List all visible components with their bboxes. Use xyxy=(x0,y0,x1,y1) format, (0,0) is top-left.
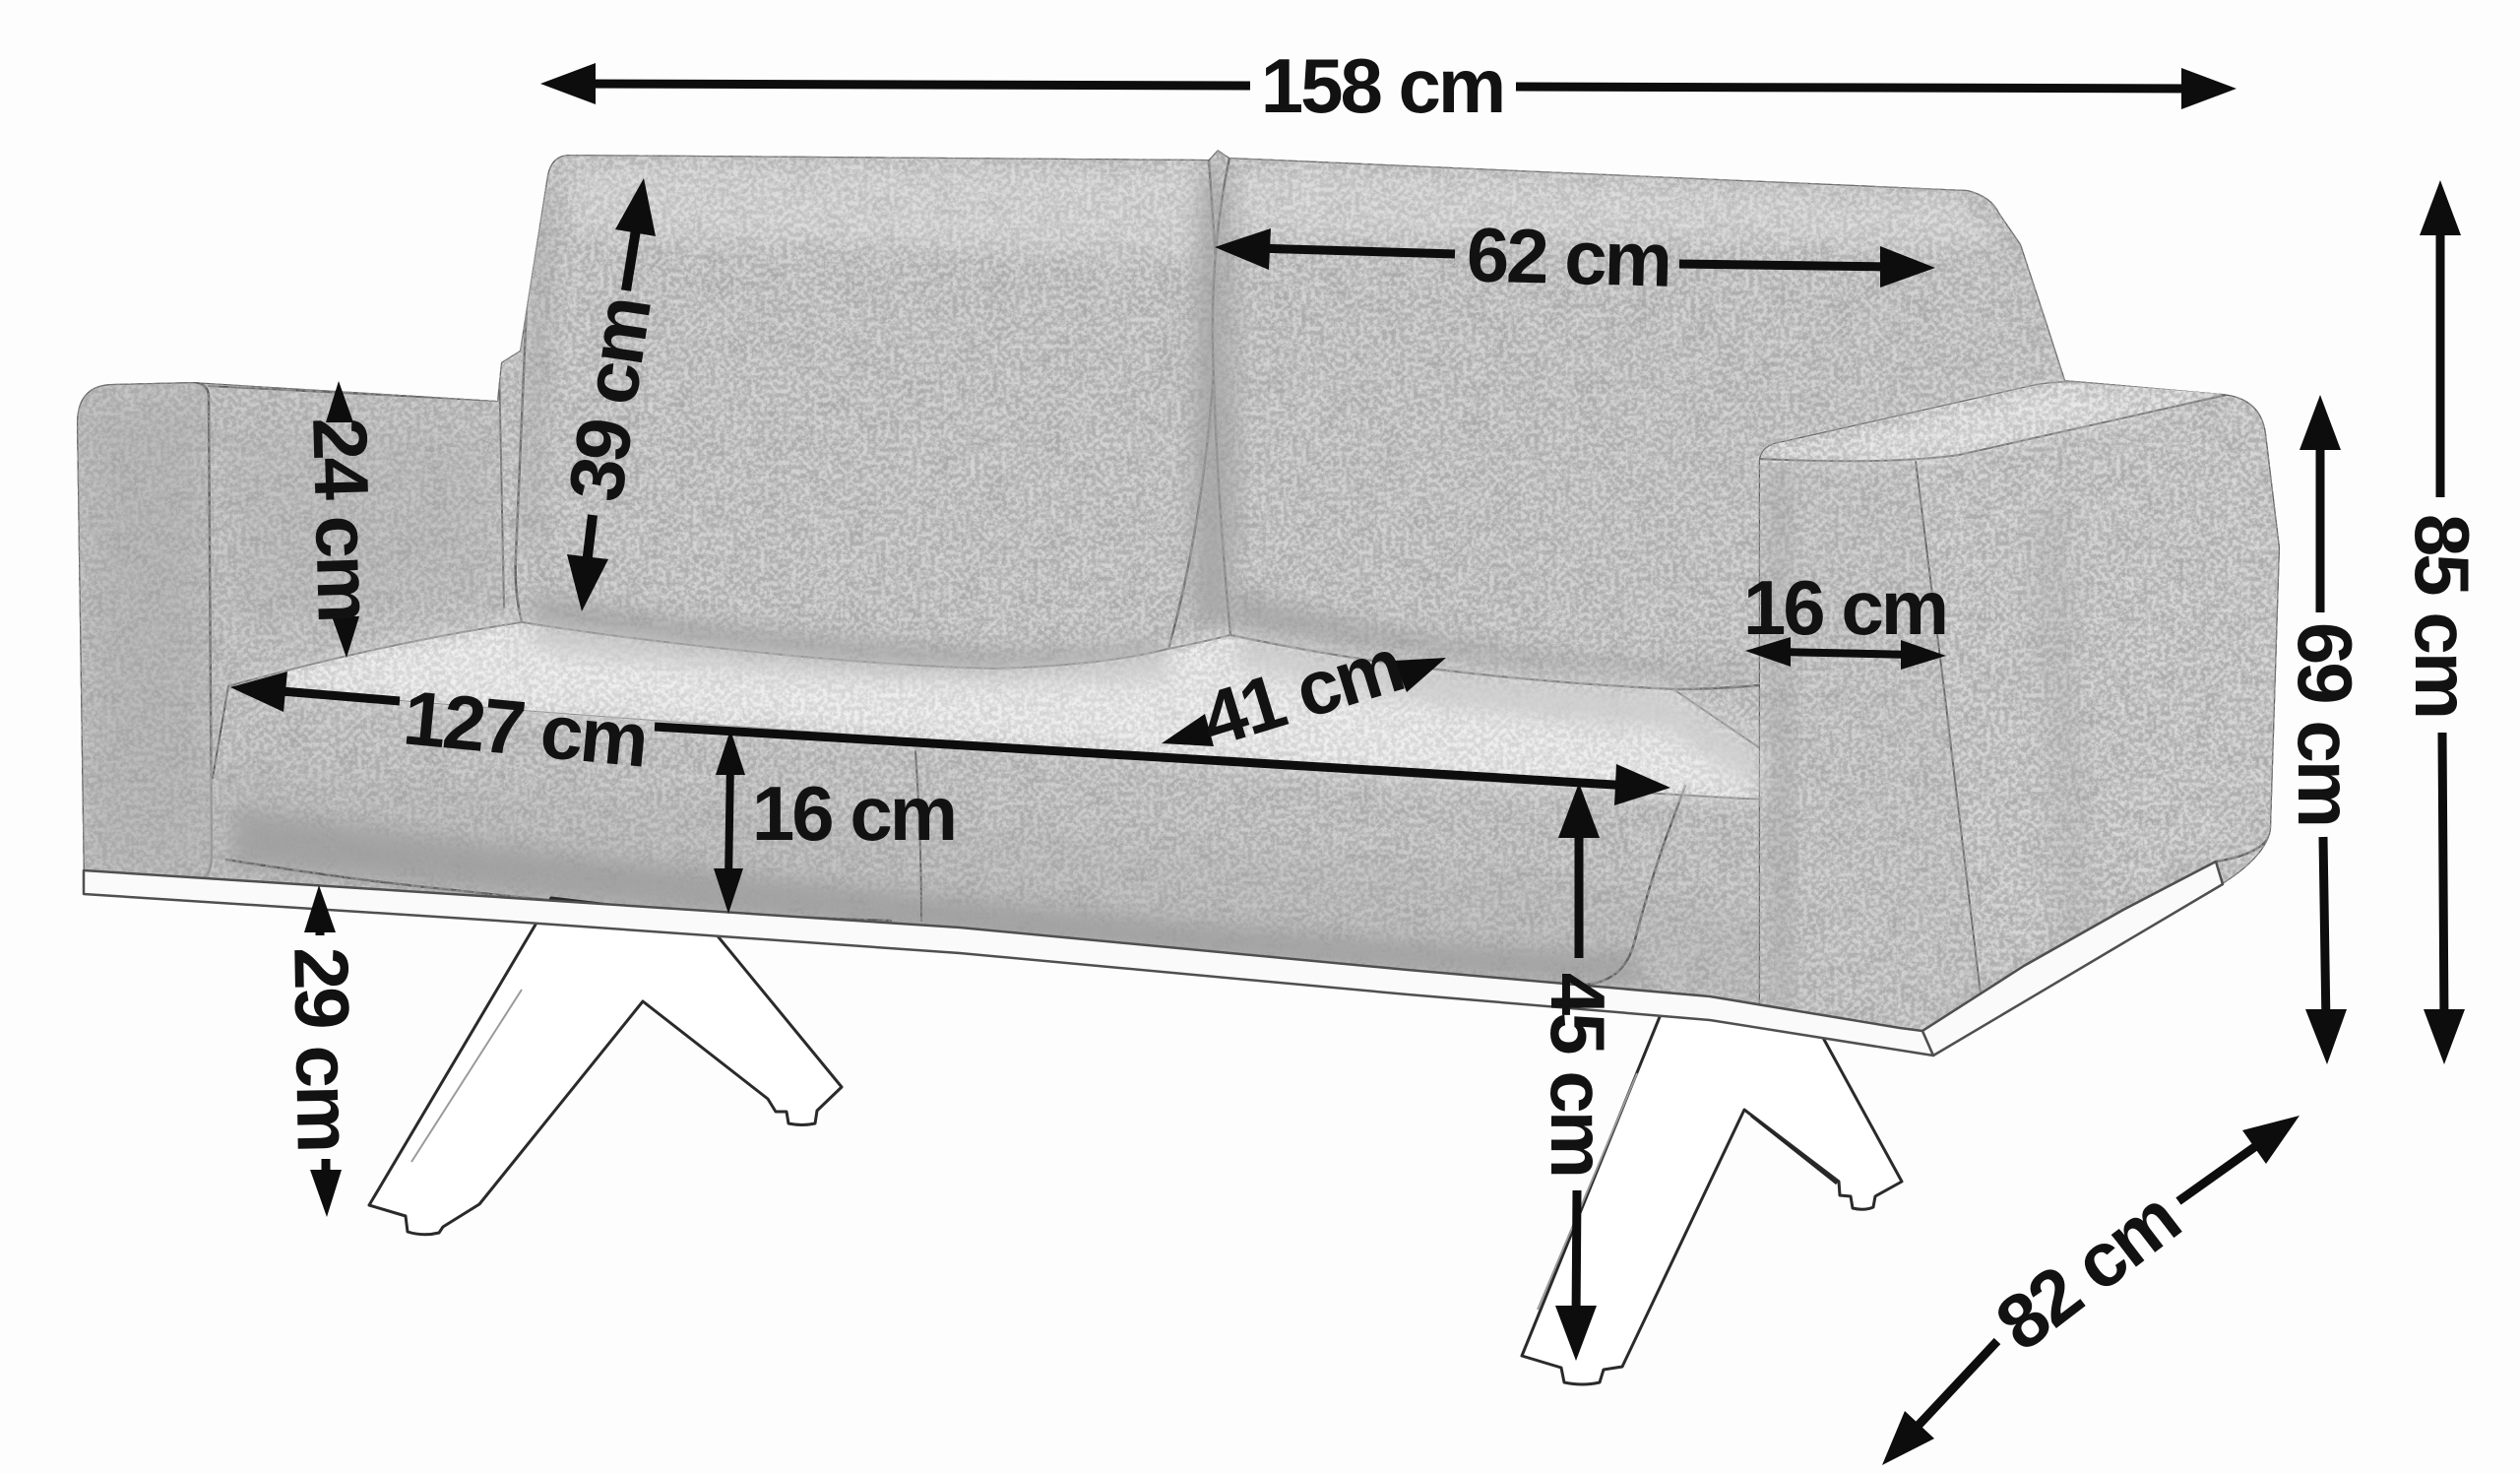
svg-text:16 cm: 16 cm xyxy=(1743,564,1946,651)
svg-text:16 cm: 16 cm xyxy=(752,770,955,857)
svg-text:45 cm: 45 cm xyxy=(1535,973,1621,1176)
svg-text:69 cm: 69 cm xyxy=(2282,622,2368,825)
svg-text:85 cm: 85 cm xyxy=(2399,514,2486,717)
svg-text:24 cm: 24 cm xyxy=(296,416,389,622)
svg-text:158 cm: 158 cm xyxy=(1261,42,1504,129)
svg-text:29 cm: 29 cm xyxy=(278,946,368,1151)
svg-text:62 cm: 62 cm xyxy=(1466,211,1670,302)
